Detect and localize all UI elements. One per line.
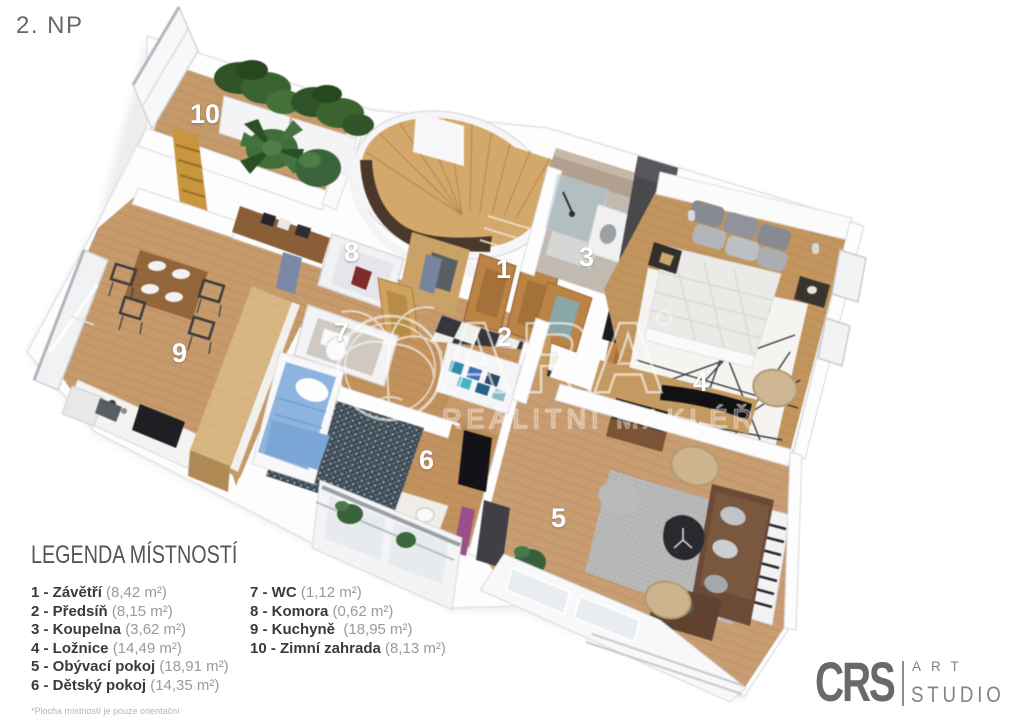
svg-text:R: R — [520, 302, 592, 414]
svg-text:A: A — [440, 302, 512, 414]
svg-text:A: A — [592, 302, 664, 414]
svg-text:REALITNÍ MAKLÉŘ: REALITNÍ MAKLÉŘ — [442, 403, 757, 434]
